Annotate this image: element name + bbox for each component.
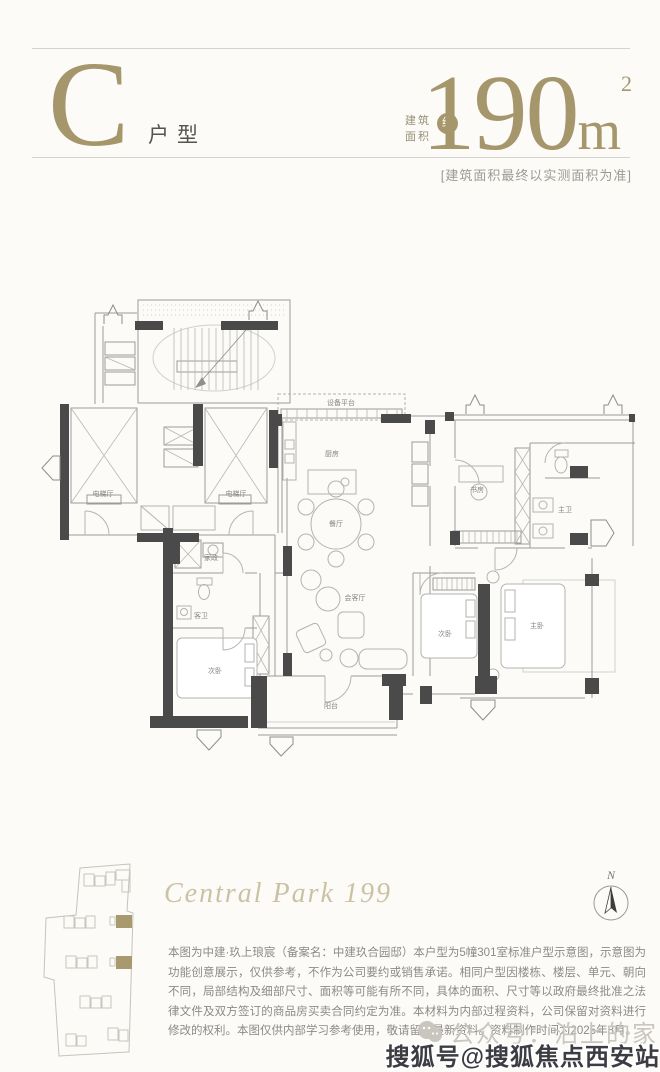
unit-type-label: 户型 <box>148 119 206 149</box>
compass-icon: N <box>588 866 634 928</box>
room-label: 电梯厅 <box>226 489 247 498</box>
unit-letter: C <box>48 44 129 166</box>
floorplan-drawing: 电梯厅电梯厅设备平台厨房餐厅会客厅书房主卫家政客卫次卧阳台次卧主卧 <box>25 228 635 803</box>
room-label: 次卧 <box>438 629 452 638</box>
project-script-title: Central Park 199 <box>164 878 392 910</box>
area-unit: m <box>577 100 621 162</box>
room-label: 主卧 <box>530 621 544 630</box>
compass-north-label: N <box>606 868 616 882</box>
floorplan-poster: C 户型 建筑 面积 约 190m2 [建筑面积最终以实测面积为准] <box>0 0 660 1072</box>
area-number: 190 <box>421 54 577 173</box>
area-note: [建筑面积最终以实测面积为准] <box>441 165 632 184</box>
area-value: 190m2 <box>421 60 632 168</box>
room-label: 阳台 <box>324 701 338 710</box>
room-label: 厨房 <box>325 449 339 458</box>
room-label: 设备平台 <box>327 398 355 407</box>
highlighted-buildings <box>116 915 132 969</box>
room-label: 会客厅 <box>345 593 366 602</box>
room-label: 次卧 <box>208 666 222 675</box>
siteplan-thumbnail <box>36 858 148 1060</box>
room-label: 家政 <box>204 553 218 562</box>
room-label: 主卫 <box>558 505 572 514</box>
room-label: 电梯厅 <box>93 489 114 498</box>
sohu-watermark: 搜狐号@搜狐焦点西安站 <box>386 1037 660 1072</box>
room-label: 客卫 <box>194 611 208 620</box>
mid-divider <box>32 157 630 158</box>
plan-markers <box>42 301 622 756</box>
room-label: 餐厅 <box>329 519 343 528</box>
area-unit-sup: 2 <box>621 71 632 96</box>
room-label: 书房 <box>470 485 484 494</box>
